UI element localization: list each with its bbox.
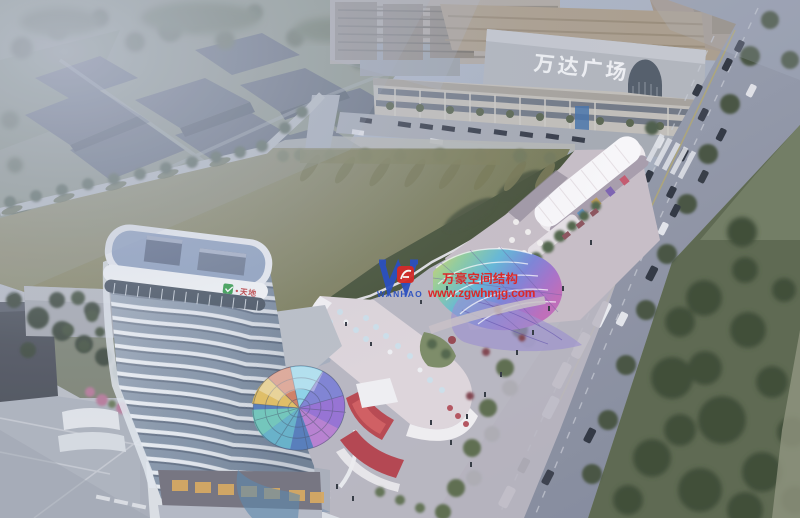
svg-text:www.zgwhmjg.com: www.zgwhmjg.com (427, 286, 535, 300)
svg-text:WANHAO: WANHAO (377, 289, 423, 299)
